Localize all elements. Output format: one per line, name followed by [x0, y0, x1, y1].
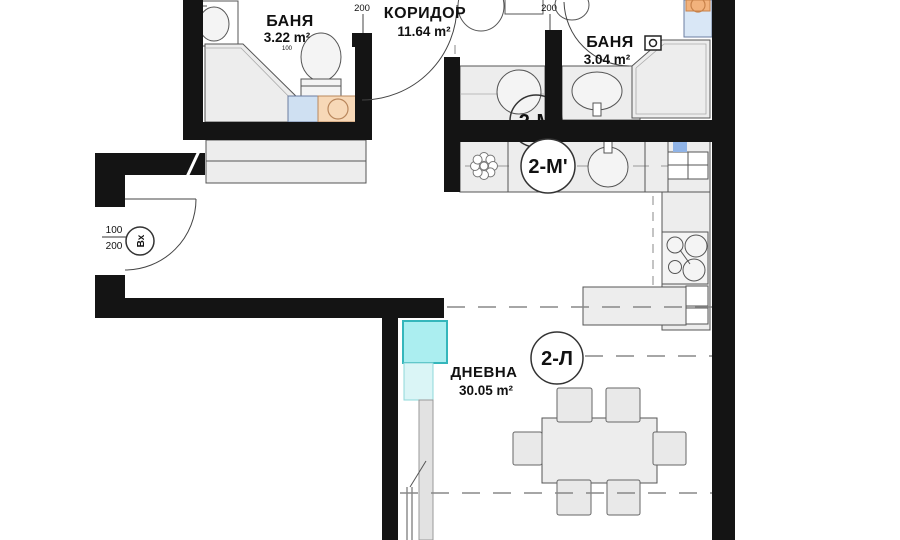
wall: [183, 122, 372, 140]
room-area-bath1: 3.22 m²: [264, 30, 311, 45]
sink-basin-icon: [199, 7, 229, 41]
bathroom-2-fixtures: [555, 0, 712, 120]
entrance-width-dim: 100: [106, 225, 123, 236]
kitchen-fixtures: [460, 140, 710, 330]
tap-icon: [593, 103, 601, 116]
cabinet: [686, 286, 708, 306]
chair: [607, 480, 640, 515]
shaft-strip-cyan: [404, 363, 433, 400]
chair: [557, 388, 592, 422]
tap-icon: [604, 141, 612, 153]
entrance-annotation: 100 200 Вх: [102, 225, 154, 255]
shower-icon: [632, 40, 710, 118]
chair: [557, 480, 591, 515]
room-name-living: ДНЕВНА: [450, 364, 517, 381]
unit-label-text: 2-М': [528, 156, 567, 178]
cistern-box: [505, 0, 543, 14]
room-name-bath2: БАНЯ: [586, 34, 634, 51]
wall: [712, 0, 735, 540]
flower-drain-icon: [471, 153, 498, 180]
door-dim-bath2: 200: [541, 3, 557, 14]
wall: [382, 315, 398, 540]
room-name-corridor: КОРИДОР: [384, 5, 466, 22]
room-area-bath2: 3.04 m²: [584, 52, 631, 67]
door-dim-bath1: 200: [354, 3, 370, 14]
unit-label-text: 2-Л: [541, 348, 573, 370]
appliance-icon: [645, 36, 661, 50]
kitchen-peninsula: [583, 287, 686, 325]
chair: [606, 388, 640, 422]
sink-basin-icon: [497, 70, 541, 114]
dining-table: [542, 418, 657, 483]
room-area-corridor: 11.64 m²: [397, 24, 451, 39]
washing-machine-icon: [318, 96, 358, 122]
shaft-marker-cyan: [403, 321, 447, 363]
chair: [513, 432, 542, 465]
unit-label-kitchen: 2-М': [521, 139, 575, 193]
wall: [355, 33, 372, 140]
entrance-height-dim: 200: [106, 241, 123, 252]
toilet-icon: [555, 0, 589, 20]
wall-finish-strip: [419, 400, 433, 540]
wall: [183, 0, 203, 140]
cabinet-blue: [288, 96, 318, 122]
floor-plan-canvas: 2-М БАНЯ 3.22 m² 100 КОРИДОР 11.64 m² БА…: [0, 0, 900, 540]
room-name-bath1: БАНЯ: [266, 13, 314, 30]
chair: [653, 432, 686, 465]
unit-label-living: 2-Л: [531, 332, 583, 384]
room-area-living: 30.05 m²: [459, 383, 514, 398]
toilet-cistern: [301, 79, 341, 96]
floor-plan: 2-М БАНЯ 3.22 m² 100 КОРИДОР 11.64 m² БА…: [0, 0, 900, 540]
door-width-label: 100: [282, 46, 293, 52]
wall: [545, 30, 562, 125]
washer-top: [686, 0, 710, 11]
wall: [444, 120, 735, 142]
cabinet: [686, 308, 708, 324]
entrance-label: Вх: [136, 234, 147, 247]
